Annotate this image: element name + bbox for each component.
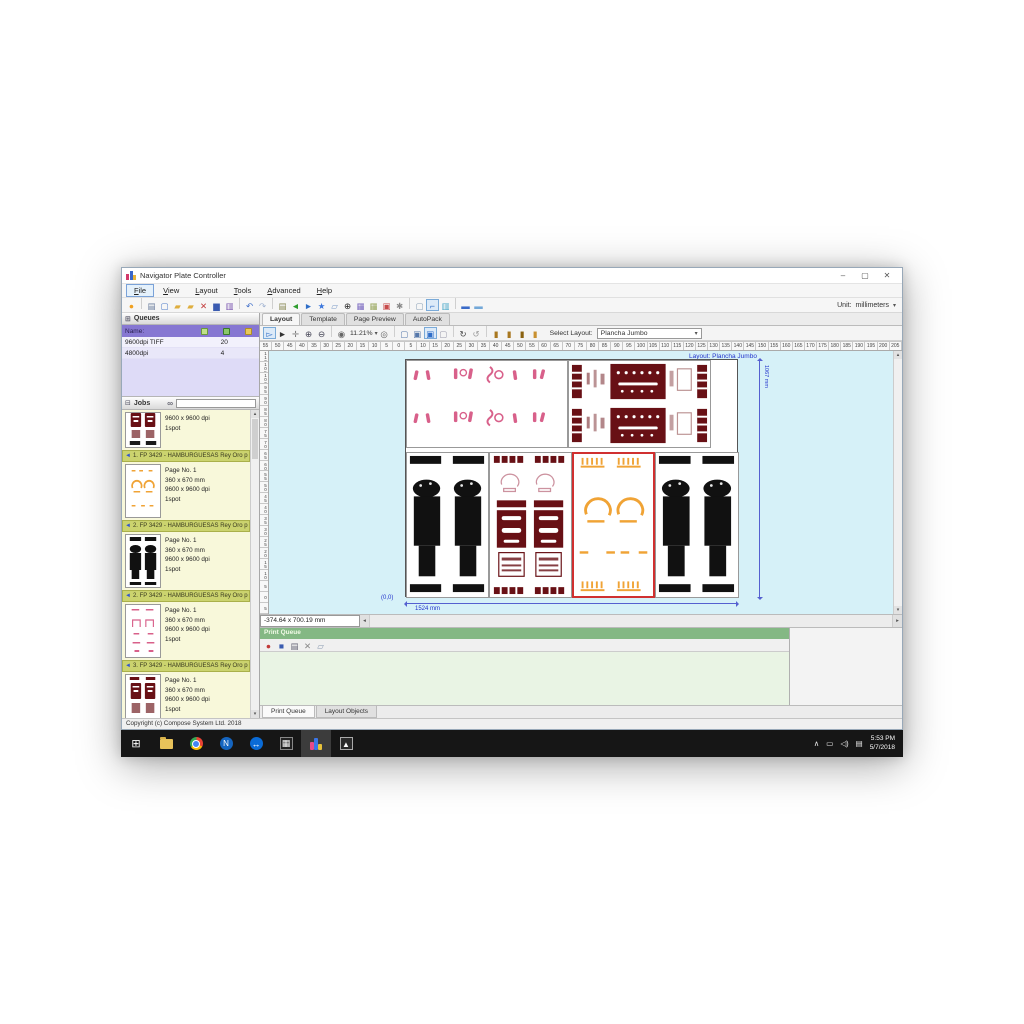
photos-icon: ▲: [340, 737, 353, 750]
pq-copy-icon[interactable]: ▱: [314, 640, 327, 652]
ruler-tick: 170: [805, 341, 817, 350]
layout-toolbar: ▻►✛⊕⊖◉ 11.21% ▾ ◎▢▣▣▢↻↺▮▮▮▮ Select Layou…: [260, 326, 902, 341]
tray-time: 5:53 PM: [870, 735, 895, 744]
job-detail: 360 x 670 mm: [165, 616, 210, 626]
page-icon: [201, 328, 208, 335]
ruler-tick: 90: [611, 341, 623, 350]
app-logo-icon: [126, 271, 136, 280]
ruler-tick: 195: [865, 341, 877, 350]
coordinate-row: -374.64 x 700.19 mm ◂ ▸: [260, 614, 902, 627]
panel-blue-icon[interactable]: ▬: [459, 300, 472, 312]
menu-advanced[interactable]: Advanced: [260, 285, 307, 296]
ruler-tick: 165: [793, 341, 805, 350]
arrow-left-icon: ◄: [125, 453, 131, 459]
select-layout-dropdown[interactable]: Plancha Jumbo ▾: [597, 328, 702, 339]
height-dimension-line: [759, 359, 760, 599]
bottom-tabs: Print Queue Layout Objects: [260, 705, 902, 718]
undo-icon[interactable]: ↶: [243, 300, 256, 312]
settings-icon[interactable]: ✱: [393, 300, 406, 312]
ruler-tick: 70: [563, 341, 575, 350]
ruler-tick: 175: [817, 341, 829, 350]
ruler-tick: 75: [260, 428, 268, 439]
ruler-tick: 100: [260, 373, 268, 384]
ruler-tick: 200: [878, 341, 890, 350]
ruler-tick: 30: [260, 526, 268, 537]
job-header[interactable]: ◄ 2. FP 3429 - HAMBURGUESAS Rey Oro p: [122, 520, 250, 532]
teamviewer-button[interactable]: ↔: [241, 730, 271, 757]
ruler-tick: 40: [490, 341, 502, 350]
queues-empty-area: [122, 359, 259, 397]
delete-icon[interactable]: ✕: [197, 300, 210, 312]
toolbar-separator: [394, 326, 395, 337]
job-header-text: 2. FP 3429 - HAMBURGUESAS Rey Oro p: [133, 593, 248, 599]
toolbar-separator: [331, 326, 332, 337]
ruler-corner-icon[interactable]: ⌐: [426, 299, 439, 311]
rotate-icon[interactable]: ↻: [457, 328, 470, 340]
job-header-text: 2. FP 3429 - HAMBURGUESAS Rey Oro p: [133, 523, 248, 529]
select-layout-value: Plancha Jumbo: [601, 330, 648, 337]
ruler-tick: 20: [345, 341, 357, 350]
ruler-tick: 100: [635, 341, 647, 350]
grid-green-icon[interactable]: ▦: [367, 300, 380, 312]
toolbar-separator: [272, 298, 273, 309]
ruler-tick: 30: [466, 341, 478, 350]
folder-icon: [245, 328, 252, 335]
job-detail: 9600 x 9600 dpi: [165, 625, 210, 635]
ruler-tick: 85: [599, 341, 611, 350]
scroll-down-icon[interactable]: ▾: [894, 606, 902, 614]
ruler-tick: 110: [660, 341, 672, 350]
height-dimension-label: 1067 mm: [763, 365, 769, 388]
job-detail: 9600 x 9600 dpi: [165, 695, 210, 705]
vertical-scrollbar[interactable]: ▴ ▾: [893, 351, 902, 614]
tab-layout-objects[interactable]: Layout Objects: [316, 706, 377, 718]
jobs-header[interactable]: ⊟ Jobs ∞: [122, 397, 259, 410]
cursor-coordinates: -374.64 x 700.19 mm: [260, 615, 360, 627]
queue-row[interactable]: 4800dpi 4: [122, 348, 259, 359]
select-layout-label: Select Layout:: [550, 330, 593, 337]
ruler-tick: 90: [260, 395, 268, 406]
ruler-tick: 185: [841, 341, 853, 350]
chrome-icon: [190, 737, 203, 750]
page-new-icon[interactable]: ▢: [398, 328, 411, 340]
width-dimension-label: 1524 mm: [415, 606, 440, 612]
dock-filler-panel: [790, 628, 902, 705]
ruler-tick: 35: [260, 515, 268, 526]
imposition-panel-orange-selected[interactable]: [572, 452, 655, 598]
job-detail: 9600 x 9600 dpi: [165, 485, 210, 495]
arrow-left-icon: ◄: [125, 593, 131, 599]
new-page-icon[interactable]: ▢: [158, 300, 171, 312]
chrome-button[interactable]: [181, 730, 211, 757]
gold-mark4-icon[interactable]: ▮: [529, 328, 542, 340]
job-header[interactable]: ◄ 2. FP 3429 - HAMBURGUESAS Rey Oro p: [122, 590, 250, 602]
ruler-tick: 115: [672, 341, 684, 350]
imposition-panel-darkred-top[interactable]: [568, 360, 711, 448]
maximize-button[interactable]: ▢: [854, 269, 876, 283]
job-thumbnail: [125, 674, 161, 718]
ruler-tick: 55: [260, 341, 272, 350]
job-detail: Page No. 1: [165, 466, 210, 476]
ruler-tick: 45: [284, 341, 296, 350]
queues-header[interactable]: ⊞ Queues: [122, 313, 259, 325]
ruler-tick: 120: [684, 341, 696, 350]
ruler-tick: 5: [260, 581, 268, 592]
ruler-tick: 50: [260, 482, 268, 493]
library-icon[interactable]: ▥: [223, 300, 236, 312]
ruler-tick: 150: [756, 341, 768, 350]
vertical-ruler: 1101051009590858075706560555045403530252…: [260, 351, 269, 614]
ruler-tick: 25: [260, 537, 268, 548]
ruler-tick: 15: [260, 559, 268, 570]
flip-icon[interactable]: ↺: [470, 328, 483, 340]
calculator-icon: ▦: [280, 737, 293, 750]
imposition-panel-darkred[interactable]: [489, 452, 572, 598]
print-queue-panel: Print Queue ●■▤✕▱: [260, 628, 790, 705]
ruler-tick: 190: [853, 341, 865, 350]
job-item[interactable]: Page No. 1 360 x 670 mm 9600 x 9600 dpi …: [122, 672, 250, 718]
job-header[interactable]: ◄ 3. FP 3429 - HAMBURGUESAS Rey Oro p: [122, 660, 250, 672]
job-detail: Page No. 1: [165, 676, 210, 686]
ruler-tick: 55: [260, 471, 268, 482]
panel-light-icon[interactable]: ▬: [472, 300, 485, 312]
job-thumbnail: [125, 534, 161, 588]
queue-row[interactable]: 9600dpi TIFF 20: [122, 337, 259, 348]
target-icon[interactable]: ◎: [378, 328, 391, 340]
grid-purple-icon[interactable]: ▦: [354, 300, 367, 312]
n-app-button[interactable]: N: [211, 730, 241, 757]
gold-mark1-icon[interactable]: ▮: [490, 328, 503, 340]
ruler-tick: 145: [744, 341, 756, 350]
clock[interactable]: 5:53 PM 5/7/2018: [870, 735, 895, 752]
ruler-tick: 95: [260, 384, 268, 395]
ruler-tick: 80: [587, 341, 599, 350]
select-tool-icon[interactable]: ▻: [263, 327, 276, 339]
width-dimension-line: [405, 603, 738, 604]
ruler-tick: 160: [781, 341, 793, 350]
ruler-tick: 75: [575, 341, 587, 350]
pan-hand-icon[interactable]: ✛: [289, 328, 302, 340]
toolbar-separator: [141, 298, 142, 309]
menu-layout[interactable]: Layout: [188, 285, 225, 296]
origin-label: (0,0): [381, 595, 393, 601]
tab-page-preview[interactable]: Page Preview: [346, 313, 404, 325]
ruler-tick: 10: [260, 570, 268, 581]
ruler-tick: 10: [417, 341, 429, 350]
scroll-down-icon[interactable]: ▾: [251, 710, 259, 718]
toolbar-separator: [453, 326, 454, 337]
job-detail: 1spot: [165, 565, 210, 575]
collapse-icon[interactable]: ⊟: [125, 399, 131, 407]
ruler-tick: 20: [260, 548, 268, 559]
imposition-panel-black[interactable]: [406, 452, 489, 598]
gold-mark3-icon[interactable]: ▮: [516, 328, 529, 340]
page-grid-icon[interactable]: ▣: [411, 328, 424, 340]
print-queue-header: Print Queue: [260, 628, 789, 639]
import-icon[interactable]: ►: [302, 300, 315, 312]
toolbar-separator: [486, 326, 487, 337]
ruler-tick: 20: [442, 341, 454, 350]
toolbar-separator: [409, 298, 410, 309]
job-detail: 9600 x 9600 dpi: [165, 414, 210, 424]
toolbar-separator: [455, 298, 456, 309]
ruler-tick: 5: [405, 341, 417, 350]
menu-tools[interactable]: Tools: [227, 285, 259, 296]
left-panel: ⊞ Queues Name: 9600dpi TIFF 20 4800dpi 4: [122, 313, 260, 718]
jobs-scrollbar[interactable]: ▴ ▾: [250, 410, 259, 718]
plate-sheet[interactable]: [405, 359, 738, 597]
queue-count: 4: [221, 350, 225, 357]
ruler-tick: 70: [260, 439, 268, 450]
file-explorer-button[interactable]: [151, 730, 181, 757]
ruler-tick: 10: [369, 341, 381, 350]
gold-mark2-icon[interactable]: ▮: [503, 328, 516, 340]
scrollbar-thumb[interactable]: [252, 419, 258, 459]
check-folder-icon: [223, 328, 230, 335]
job-detail: 360 x 670 mm: [165, 546, 210, 556]
ruler-tick: 40: [260, 504, 268, 515]
main-toolbar: ●▤▢▰▰✕▆▥↶↷▤◄►★▱⊕▦▦▣✱▢⌐▥▬▬ Unit: millimet…: [122, 298, 902, 313]
job-detail: 9600 x 9600 dpi: [165, 555, 210, 565]
network-icon[interactable]: ▭: [826, 739, 833, 748]
ruler-tick: 35: [478, 341, 490, 350]
queue-name: 4800dpi: [125, 350, 148, 357]
teamviewer-icon: ↔: [250, 737, 263, 750]
ruler-tick: 130: [708, 341, 720, 350]
pq-stop-icon[interactable]: ■: [275, 640, 288, 652]
favorite-icon[interactable]: ★: [315, 300, 328, 312]
job-detail: 1spot: [165, 705, 210, 715]
ruler-tick: 0: [393, 341, 405, 350]
job-detail: Page No. 1: [165, 536, 210, 546]
ruler-tick: 95: [623, 341, 635, 350]
tab-print-queue[interactable]: Print Queue: [262, 706, 315, 718]
tray-date: 5/7/2018: [870, 744, 895, 753]
folder-icon: [160, 739, 173, 749]
horizontal-ruler: 5550454035302520151050510152025303540455…: [260, 341, 902, 351]
tab-template[interactable]: Template: [301, 313, 345, 325]
search-binoculars-icon[interactable]: ∞: [167, 399, 173, 408]
export-icon[interactable]: ◄: [289, 300, 302, 312]
tab-autopack[interactable]: AutoPack: [405, 313, 450, 325]
windows-logo-icon: ⊞: [131, 737, 140, 750]
job-header[interactable]: ◄ 1. FP 3429 - HAMBURGUESAS Rey Oro p: [122, 450, 250, 462]
taskbar: ⊞ N ↔ ▦ ▲ ∧ ▭ ◁) ▤ 5:53 PM 5/7/2018: [121, 730, 903, 757]
scroll-up-icon[interactable]: ▴: [894, 351, 902, 359]
page-icon[interactable]: ▢: [413, 300, 426, 312]
ruler-tick: 15: [430, 341, 442, 350]
navigator-app-button[interactable]: [301, 730, 331, 757]
jobs-title: Jobs: [134, 400, 150, 407]
photos-button[interactable]: ▲: [331, 730, 361, 757]
pq-delete-icon[interactable]: ✕: [301, 640, 314, 652]
chevron-down-icon: ▾: [893, 302, 896, 309]
queue-name: 9600dpi TIFF: [125, 339, 164, 346]
job-item[interactable]: Page No. 1 360 x 670 mm 9600 x 9600 dpi …: [122, 462, 250, 520]
ruler-tick: 60: [260, 461, 268, 472]
chevron-down-icon: ▾: [695, 330, 698, 337]
job-detail: 1spot: [165, 635, 210, 645]
zoom-out-icon[interactable]: ⊖: [315, 328, 328, 340]
arrow-left-icon: ◄: [125, 523, 131, 529]
print-icon[interactable]: ▤: [276, 300, 289, 312]
pointer-icon[interactable]: ►: [276, 328, 289, 340]
paste-icon[interactable]: ▱: [328, 300, 341, 312]
job-item-partial[interactable]: 9600 x 9600 dpi 1spot: [122, 410, 250, 450]
ruler-tick: 5: [381, 341, 393, 350]
job-thumbnail: [125, 604, 161, 658]
job-detail: Page No. 1: [165, 606, 210, 616]
tab-layout[interactable]: Layout: [262, 313, 300, 325]
ruler-tick: 45: [502, 341, 514, 350]
layout-area: Layout Template Page Preview AutoPack ▻►…: [260, 313, 902, 718]
screen: Navigator Plate Controller – ▢ ✕ File Vi…: [121, 267, 903, 757]
job-detail: 360 x 670 mm: [165, 686, 210, 696]
fit-view-icon[interactable]: ◉: [335, 328, 348, 340]
open-folder-icon[interactable]: ▰: [171, 300, 184, 312]
arrow-left-icon: ◄: [125, 663, 131, 669]
ruler-tick: 125: [696, 341, 708, 350]
chart-icon[interactable]: ▥: [439, 300, 452, 312]
app-window: Navigator Plate Controller – ▢ ✕ File Vi…: [121, 267, 903, 730]
job-detail: 360 x 670 mm: [165, 476, 210, 486]
job-item[interactable]: Page No. 1 360 x 670 mm 9600 x 9600 dpi …: [122, 602, 250, 660]
collapse-icon[interactable]: ⊞: [125, 315, 131, 323]
start-button[interactable]: ⊞: [121, 730, 151, 757]
system-tray: ∧ ▭ ◁) ▤ 5:53 PM 5/7/2018: [814, 730, 903, 757]
save-icon[interactable]: ▆: [210, 300, 223, 312]
window-title: Navigator Plate Controller: [140, 271, 226, 280]
tray-chevron-icon[interactable]: ∧: [814, 739, 820, 748]
calculator-button[interactable]: ▦: [271, 730, 301, 757]
status-bar: Copyright (c) Compose System Ltd. 2018: [122, 718, 902, 729]
n-app-icon: N: [220, 737, 233, 750]
ruler-tick: 140: [732, 341, 744, 350]
pq-print-icon[interactable]: ▤: [288, 640, 301, 652]
ruler-tick: 180: [829, 341, 841, 350]
jobs-search-input[interactable]: [176, 399, 256, 408]
menu-view[interactable]: View: [156, 285, 186, 296]
scroll-right-icon[interactable]: ▸: [892, 615, 902, 627]
queue-count: 20: [221, 339, 228, 346]
ruler-tick: 65: [260, 450, 268, 461]
ruler-tick: 135: [720, 341, 732, 350]
ruler-tick: 110: [260, 351, 268, 362]
print-queue-toolbar: ●■▤✕▱: [260, 639, 789, 652]
title-bar[interactable]: Navigator Plate Controller – ▢ ✕: [122, 268, 902, 284]
job-detail: 1spot: [165, 424, 210, 434]
ruler-tick: 30: [321, 341, 333, 350]
scroll-up-icon[interactable]: ▴: [251, 410, 259, 418]
redo-icon[interactable]: ↷: [256, 300, 269, 312]
queues-name-column: Name:: [125, 328, 144, 335]
ruler-tick: 50: [514, 341, 526, 350]
navigator-icon: [310, 738, 322, 750]
job-detail: 1spot: [165, 495, 210, 505]
view-tabs: Layout Template Page Preview AutoPack: [260, 313, 902, 326]
layout-canvas[interactable]: Layout: Plancha Jumbo: [269, 351, 893, 614]
ruler-tick: 205: [890, 341, 902, 350]
ruler-tick: 0: [260, 592, 268, 603]
unit-label: Unit:: [837, 302, 851, 309]
unit-value: millimeters: [856, 302, 889, 309]
ruler-tick: 85: [260, 406, 268, 417]
ruler-tick: 65: [551, 341, 563, 350]
menu-help[interactable]: Help: [310, 285, 339, 296]
job-header-text: 3. FP 3429 - HAMBURGUESAS Rey Oro p: [133, 663, 248, 669]
queues-table-header: Name:: [122, 325, 259, 337]
ruler-tick: 15: [357, 341, 369, 350]
ruler-tick: 25: [333, 341, 345, 350]
horizontal-scrollbar[interactable]: ◂ ▸: [360, 615, 902, 627]
queues-title: Queues: [134, 315, 160, 322]
ruler-tick: 60: [539, 341, 551, 350]
unit-selector[interactable]: Unit: millimeters ▾: [837, 302, 896, 309]
ruler-tick: 105: [648, 341, 660, 350]
job-thumbnail: [125, 412, 161, 448]
notification-icon[interactable]: ▤: [856, 739, 863, 748]
imposition-panel-pink[interactable]: [406, 360, 568, 448]
folder-icon[interactable]: ▰: [184, 300, 197, 312]
print-queue-list[interactable]: [260, 652, 789, 705]
job-header-text: 1. FP 3429 - HAMBURGUESAS Rey Oro p: [133, 453, 248, 459]
ruler-tick: 80: [260, 417, 268, 428]
print-setup-icon[interactable]: ▤: [145, 300, 158, 312]
record-icon[interactable]: ●: [125, 300, 138, 312]
alert-icon[interactable]: ▣: [380, 300, 393, 312]
jobs-list[interactable]: 9600 x 9600 dpi 1spot ◄ 1. FP 3429 - HAM…: [122, 410, 259, 718]
toolbar-separator: [239, 298, 240, 309]
pq-pause-icon[interactable]: ●: [262, 640, 275, 652]
job-item[interactable]: Page No. 1 360 x 670 mm 9600 x 9600 dpi …: [122, 532, 250, 590]
ruler-tick: 45: [260, 493, 268, 504]
zoom-in-icon[interactable]: ⊕: [302, 328, 315, 340]
minimize-button[interactable]: –: [832, 269, 854, 283]
center-icon[interactable]: ⊕: [341, 300, 354, 312]
zoom-level[interactable]: 11.21%: [350, 330, 373, 337]
speaker-icon[interactable]: ◁): [840, 739, 848, 748]
ruler-tick: 5: [260, 603, 268, 614]
ruler-tick: 25: [454, 341, 466, 350]
page-marked-icon[interactable]: ▣: [424, 327, 437, 339]
ruler-tick: 35: [308, 341, 320, 350]
ruler-tick: 105: [260, 362, 268, 373]
ruler-tick: 155: [769, 341, 781, 350]
job-thumbnail: [125, 464, 161, 518]
imposition-panel-black[interactable]: [655, 452, 739, 598]
page-plain-icon[interactable]: ▢: [437, 328, 450, 340]
close-button[interactable]: ✕: [876, 269, 898, 283]
ruler-tick: 55: [526, 341, 538, 350]
ruler-tick: 50: [272, 341, 284, 350]
scroll-left-icon[interactable]: ◂: [360, 615, 370, 627]
ruler-tick: 40: [296, 341, 308, 350]
